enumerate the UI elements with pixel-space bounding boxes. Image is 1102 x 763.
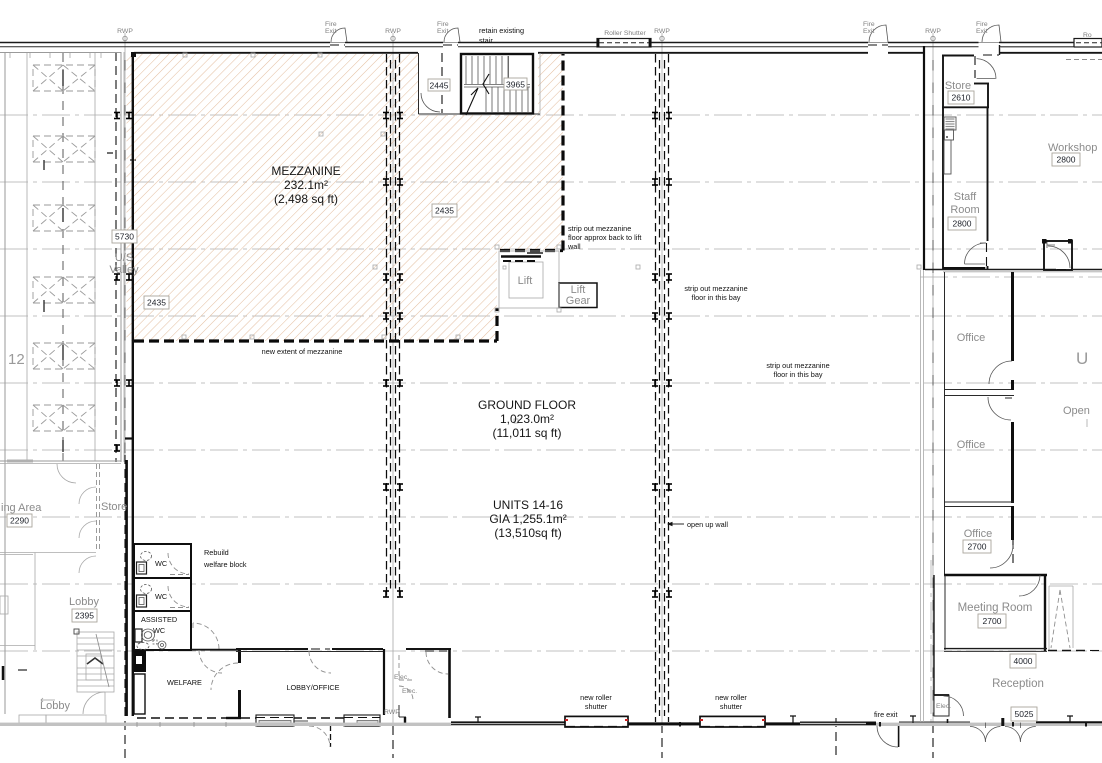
svg-text:new extent of mezzanine: new extent of mezzanine bbox=[262, 347, 343, 356]
svg-text:Lobby: Lobby bbox=[69, 596, 99, 608]
svg-text:retain existing: retain existing bbox=[479, 26, 524, 35]
svg-text:strip out mezzanine: strip out mezzanine bbox=[766, 361, 829, 370]
svg-text:RWP: RWP bbox=[385, 28, 401, 35]
svg-text:2435: 2435 bbox=[147, 298, 166, 308]
svg-text:Gear: Gear bbox=[566, 295, 591, 307]
svg-text:Elec.: Elec. bbox=[936, 703, 951, 710]
svg-text:Ro: Ro bbox=[1083, 32, 1092, 39]
svg-text:RWP: RWP bbox=[384, 709, 400, 716]
svg-text:strip out mezzanine: strip out mezzanine bbox=[684, 284, 747, 293]
svg-text:Valley: Valley bbox=[109, 264, 139, 276]
svg-text:Elec.: Elec. bbox=[394, 674, 409, 681]
svg-text:ASSISTED: ASSISTED bbox=[141, 615, 177, 624]
svg-text:2435: 2435 bbox=[435, 206, 454, 216]
svg-text:Office: Office bbox=[957, 332, 986, 344]
svg-text:232.1m²: 232.1m² bbox=[284, 178, 328, 192]
svg-text:floor approx back to lift: floor approx back to lift bbox=[568, 233, 641, 242]
svg-text:Lobby: Lobby bbox=[40, 700, 70, 712]
svg-text:2700: 2700 bbox=[968, 542, 987, 552]
svg-text:Roller Shutter: Roller Shutter bbox=[604, 30, 646, 37]
svg-text:Lift: Lift bbox=[518, 275, 533, 287]
svg-text:WC: WC bbox=[155, 559, 167, 568]
svg-text:new roller: new roller bbox=[580, 693, 612, 702]
svg-text:Store: Store bbox=[101, 501, 127, 513]
svg-text:UNITS 14-16: UNITS 14-16 bbox=[493, 498, 563, 512]
svg-text:open up wall: open up wall bbox=[687, 520, 728, 529]
svg-text:GROUND FLOOR: GROUND FLOOR bbox=[478, 398, 576, 412]
svg-text:Elec.: Elec. bbox=[402, 688, 417, 695]
svg-text:Fire: Fire bbox=[437, 21, 449, 28]
svg-text:2290: 2290 bbox=[10, 516, 29, 526]
svg-text:shutter: shutter bbox=[720, 702, 743, 711]
svg-text:fire exit: fire exit bbox=[874, 710, 898, 719]
svg-text:ing Area: ing Area bbox=[1, 502, 42, 514]
svg-text:WELFARE: WELFARE bbox=[167, 678, 202, 687]
svg-text:Exit: Exit bbox=[437, 28, 448, 35]
svg-text:MEZZANINE: MEZZANINE bbox=[271, 164, 340, 178]
svg-text:2445: 2445 bbox=[430, 81, 449, 91]
svg-text:Reception: Reception bbox=[992, 678, 1044, 690]
svg-text:(2,498 sq ft): (2,498 sq ft) bbox=[274, 192, 338, 206]
svg-text:Office: Office bbox=[957, 439, 986, 451]
svg-text:wall: wall bbox=[567, 242, 581, 251]
svg-text:Fire: Fire bbox=[863, 21, 875, 28]
svg-text:Fire: Fire bbox=[976, 21, 988, 28]
svg-text:RWP: RWP bbox=[654, 28, 670, 35]
svg-text:Open: Open bbox=[1063, 405, 1090, 417]
svg-text:strip out mezzanine: strip out mezzanine bbox=[568, 224, 631, 233]
svg-text:Rebuild: Rebuild bbox=[204, 548, 229, 557]
svg-text:Exit: Exit bbox=[325, 28, 336, 35]
svg-text:2800: 2800 bbox=[953, 219, 972, 229]
svg-text:2700: 2700 bbox=[983, 616, 1002, 626]
svg-text:WC: WC bbox=[155, 592, 167, 601]
svg-text:LOBBY/OFFICE: LOBBY/OFFICE bbox=[286, 683, 339, 692]
svg-text:Exit: Exit bbox=[976, 28, 987, 35]
svg-text:GIA 1,255.1m²: GIA 1,255.1m² bbox=[489, 512, 566, 526]
svg-text:Workshop: Workshop bbox=[1048, 142, 1097, 154]
svg-text:(11,011 sq ft): (11,011 sq ft) bbox=[493, 426, 562, 440]
svg-text:new roller: new roller bbox=[715, 693, 747, 702]
svg-text:RWP: RWP bbox=[117, 28, 133, 35]
svg-text:4000: 4000 bbox=[1014, 656, 1033, 666]
svg-text:U: U bbox=[1076, 349, 1088, 368]
svg-text:1,023.0m²: 1,023.0m² bbox=[500, 412, 554, 426]
svg-text:3965: 3965 bbox=[506, 80, 525, 90]
svg-text:2800: 2800 bbox=[1057, 155, 1076, 165]
svg-text:Office: Office bbox=[964, 528, 993, 540]
svg-text:shutter: shutter bbox=[585, 702, 608, 711]
svg-text:floor in this bay: floor in this bay bbox=[773, 370, 822, 379]
svg-text:Meeting Room: Meeting Room bbox=[958, 602, 1033, 614]
svg-text:WC: WC bbox=[153, 626, 165, 635]
svg-text:Store: Store bbox=[945, 80, 971, 92]
svg-text:Fire: Fire bbox=[325, 21, 337, 28]
svg-text:welfare block: welfare block bbox=[203, 560, 247, 569]
svg-text:2395: 2395 bbox=[75, 611, 94, 621]
svg-text:floor in this bay: floor in this bay bbox=[691, 293, 740, 302]
svg-text:Staff: Staff bbox=[954, 191, 977, 203]
svg-text:12: 12 bbox=[8, 351, 25, 368]
svg-text:(13,510sq ft): (13,510sq ft) bbox=[494, 526, 561, 540]
svg-text:U/S: U/S bbox=[115, 252, 133, 264]
svg-text:Exit: Exit bbox=[863, 28, 874, 35]
svg-text:stair: stair bbox=[479, 36, 493, 45]
svg-text:2610: 2610 bbox=[952, 93, 971, 103]
svg-text:5730: 5730 bbox=[115, 232, 134, 242]
svg-text:Room: Room bbox=[950, 204, 979, 216]
svg-text:5025: 5025 bbox=[1015, 709, 1034, 719]
svg-text:RWP: RWP bbox=[925, 28, 941, 35]
